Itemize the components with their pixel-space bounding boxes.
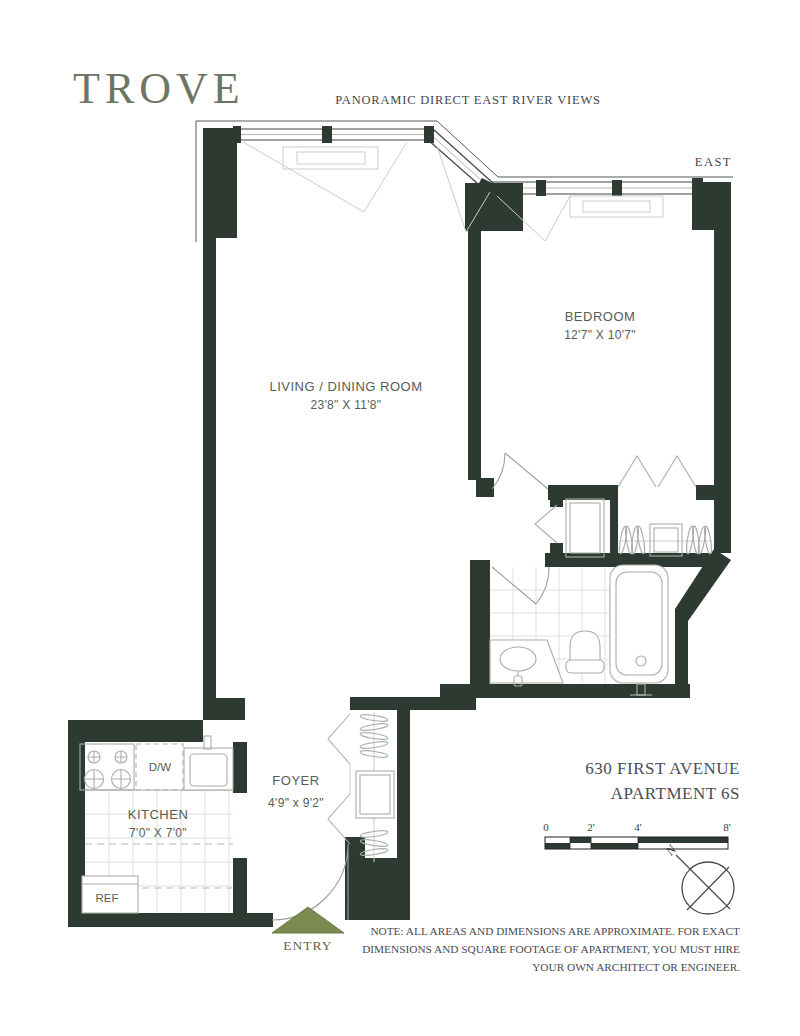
dishwasher-label: D/W xyxy=(149,761,172,773)
address-line2: APARTMENT 6S xyxy=(611,784,740,803)
note-line2: DIMENSIONS AND SQUARE FOOTAGE OF APARTME… xyxy=(362,943,740,955)
bedroom-dims: 12'7" X 10'7" xyxy=(564,328,636,342)
living-dining-label: LIVING / DINING ROOM xyxy=(269,379,422,394)
foyer-dims: 4'9" x 9'2" xyxy=(268,796,324,810)
foyer-label: FOYER xyxy=(272,773,319,788)
linen-closet xyxy=(535,499,604,557)
note-line3: YOUR OWN ARCHITECT OR ENGINEER. xyxy=(532,961,740,973)
scale-tick-0: 0 xyxy=(543,821,549,833)
refrigerator: REF xyxy=(82,876,138,913)
scale-bar: 0 2' 4' 8' xyxy=(543,821,731,849)
address-line1: 630 FIRST AVENUE xyxy=(585,759,740,778)
tagline: PANORAMIC DIRECT EAST RIVER VIEWS xyxy=(335,93,601,107)
scale-tick-4: 4' xyxy=(634,821,642,833)
refrigerator-label: REF xyxy=(96,892,119,904)
stove-icon xyxy=(80,744,134,790)
east-direction-label: EAST xyxy=(695,155,732,169)
bathroom-area xyxy=(490,565,668,695)
compass-icon: N xyxy=(662,841,734,914)
living-dining-dims: 23'8" X 11'8" xyxy=(311,398,382,412)
hangers-icon xyxy=(618,526,713,554)
kitchen-label: KITCHEN xyxy=(128,807,189,822)
window xyxy=(236,129,692,194)
note-line1: NOTE: ALL AREAS AND DIMENSIONS ARE APPRO… xyxy=(370,925,740,937)
brand-logo: TROVE xyxy=(73,64,245,113)
kitchen-dims: 7'0" X 7'0" xyxy=(129,826,187,840)
floor-plan-drawing: D/W REF KITCHEN 7'0" X 7'0" xyxy=(0,0,800,1036)
kitchen-area: D/W REF KITCHEN 7'0" X 7'0" xyxy=(80,736,233,913)
bedroom-closet xyxy=(618,456,713,556)
entry-label: ENTRY xyxy=(283,938,332,953)
entry-marker: ENTRY xyxy=(272,907,344,953)
scale-tick-8: 8' xyxy=(723,821,731,833)
scale-tick-2: 2' xyxy=(587,821,595,833)
bedroom-label: BEDROOM xyxy=(565,309,636,324)
entry-arrow-icon xyxy=(272,907,344,933)
bifold-door xyxy=(328,714,350,844)
foyer-closet xyxy=(328,712,394,862)
bifold-door xyxy=(535,505,557,543)
dishwasher: D/W xyxy=(136,744,183,790)
kitchen-sink-icon xyxy=(184,736,233,790)
closet-shelf xyxy=(650,524,682,556)
vanity-counter xyxy=(490,640,563,683)
floor-plan-page: D/W REF KITCHEN 7'0" X 7'0" xyxy=(0,0,800,1036)
bifold-door xyxy=(618,456,696,487)
closet-shelf xyxy=(356,771,394,818)
toilet-icon xyxy=(566,631,604,673)
bathtub-icon xyxy=(610,565,668,695)
